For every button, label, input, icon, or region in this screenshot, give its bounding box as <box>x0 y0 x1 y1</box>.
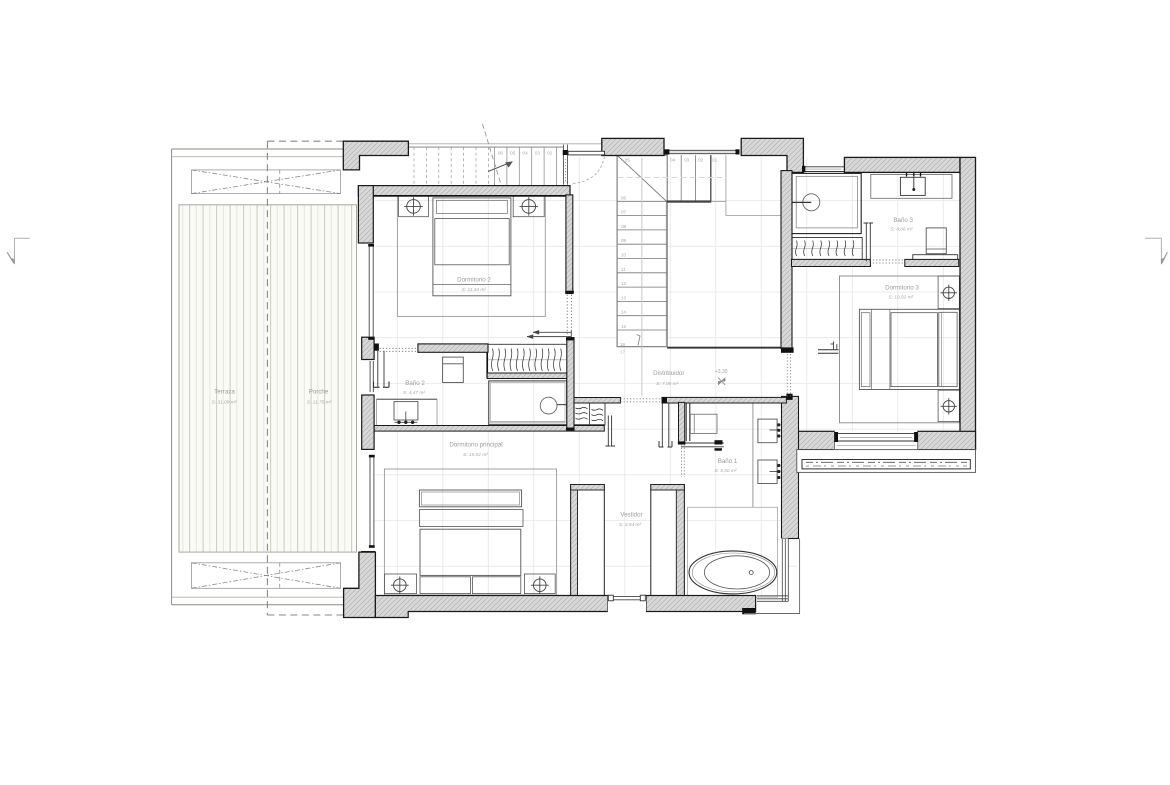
svg-text:S: 3,94 m²: S: 3,94 m² <box>619 522 642 528</box>
svg-text:14: 14 <box>621 310 627 315</box>
svg-text:15: 15 <box>621 324 627 329</box>
svg-text:17: 17 <box>620 350 625 355</box>
svg-text:Dormitorio principal: Dormitorio principal <box>449 442 502 449</box>
svg-text:S: 7,05 m²: S: 7,05 m² <box>656 381 679 387</box>
svg-text:Distribuidor: Distribuidor <box>653 370 684 377</box>
svg-text:16: 16 <box>620 342 626 347</box>
svg-text:06: 06 <box>498 151 504 156</box>
svg-text:S: 15,02 m²: S: 15,02 m² <box>463 452 488 458</box>
svg-text:04: 04 <box>523 151 529 156</box>
svg-text:+3,30: +3,30 <box>715 369 728 375</box>
svg-text:Terraza: Terraza <box>214 389 235 396</box>
svg-text:03: 03 <box>684 158 690 163</box>
svg-text:Porche: Porche <box>309 389 329 396</box>
svg-text:Baño 2: Baño 2 <box>405 380 425 387</box>
svg-text:S: 11,75 m²: S: 11,75 m² <box>307 400 332 406</box>
svg-text:Dormitorio 2: Dormitorio 2 <box>457 277 491 284</box>
svg-text:Dormitorio 3: Dormitorio 3 <box>885 285 919 292</box>
svg-text:S: 4,66 m²: S: 4,66 m² <box>890 227 913 233</box>
svg-text:07: 07 <box>621 210 627 215</box>
svg-text:S: 31,09 m²: S: 31,09 m² <box>212 400 237 406</box>
svg-text:05: 05 <box>510 151 516 156</box>
svg-text:S: 5,50 m²: S: 5,50 m² <box>714 468 737 474</box>
svg-text:13: 13 <box>621 295 627 300</box>
svg-text:Vestidor: Vestidor <box>620 512 642 519</box>
svg-text:11: 11 <box>621 267 626 272</box>
svg-text:01: 01 <box>712 158 718 163</box>
svg-text:12: 12 <box>621 281 627 286</box>
svg-text:02: 02 <box>547 151 553 156</box>
svg-text:S: 4,47 m²: S: 4,47 m² <box>403 390 426 396</box>
svg-text:Baño 3: Baño 3 <box>893 217 913 224</box>
svg-text:06: 06 <box>621 195 627 200</box>
svg-text:05: 05 <box>625 158 631 163</box>
svg-text:10: 10 <box>621 253 627 258</box>
svg-text:09: 09 <box>621 238 627 243</box>
svg-text:04: 04 <box>670 158 676 163</box>
svg-text:02: 02 <box>698 158 704 163</box>
svg-text:03: 03 <box>535 151 541 156</box>
svg-text:S: 10,92 m²: S: 10,92 m² <box>888 295 913 301</box>
svg-text:S: 11,34 m²: S: 11,34 m² <box>462 287 487 293</box>
svg-text:Baño 1: Baño 1 <box>718 458 738 465</box>
svg-text:08: 08 <box>621 224 627 229</box>
